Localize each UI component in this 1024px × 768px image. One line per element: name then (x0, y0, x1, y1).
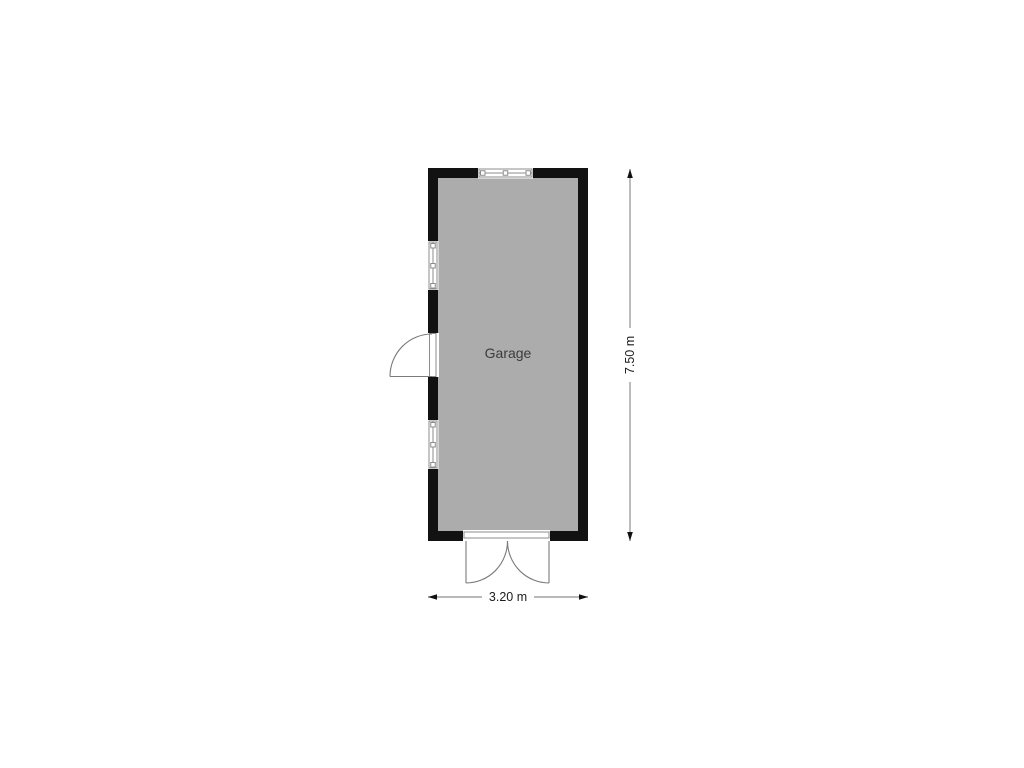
dimension-height-label: 7.50 m (623, 336, 637, 374)
door-bottom-frame (464, 532, 549, 538)
dimension-width-arrow-right (579, 594, 588, 600)
window-left-upper-mullion-center (431, 264, 436, 269)
door-left-swing-arc (390, 334, 432, 377)
floorplan-svg: Garage 3.20 m 7.50 m (0, 0, 1024, 768)
dimension-width: 3.20 m (428, 589, 588, 605)
window-top-mullion-center (503, 171, 508, 176)
dimension-width-label: 3.20 m (489, 590, 527, 604)
door-bottom-left-swing-arc (466, 541, 508, 583)
dimension-height-arrow-bottom (627, 532, 633, 541)
room-label: Garage (485, 345, 532, 361)
window-top-mullion-right (526, 171, 531, 176)
door-left-frame (430, 334, 437, 377)
dimension-height-arrow-top (627, 169, 633, 178)
door-bottom-double (463, 530, 550, 583)
floorplan-canvas: Garage 3.20 m 7.50 m (0, 0, 1024, 768)
dimension-height: 7.50 m (622, 169, 638, 541)
window-left-lower-mullion-center (431, 443, 436, 448)
window-left-upper-mullion-top (431, 244, 436, 249)
window-left-lower (428, 420, 439, 469)
door-bottom-right-swing-arc (508, 541, 550, 583)
window-left-upper (428, 241, 439, 290)
window-left-lower-mullion-top (431, 423, 436, 428)
window-top (478, 168, 533, 179)
window-left-upper-mullion-bottom (431, 284, 436, 289)
window-left-lower-mullion-bottom (431, 463, 436, 468)
door-left-single (390, 333, 439, 377)
window-top-mullion-left (481, 171, 486, 176)
dimension-width-arrow-left (428, 594, 437, 600)
